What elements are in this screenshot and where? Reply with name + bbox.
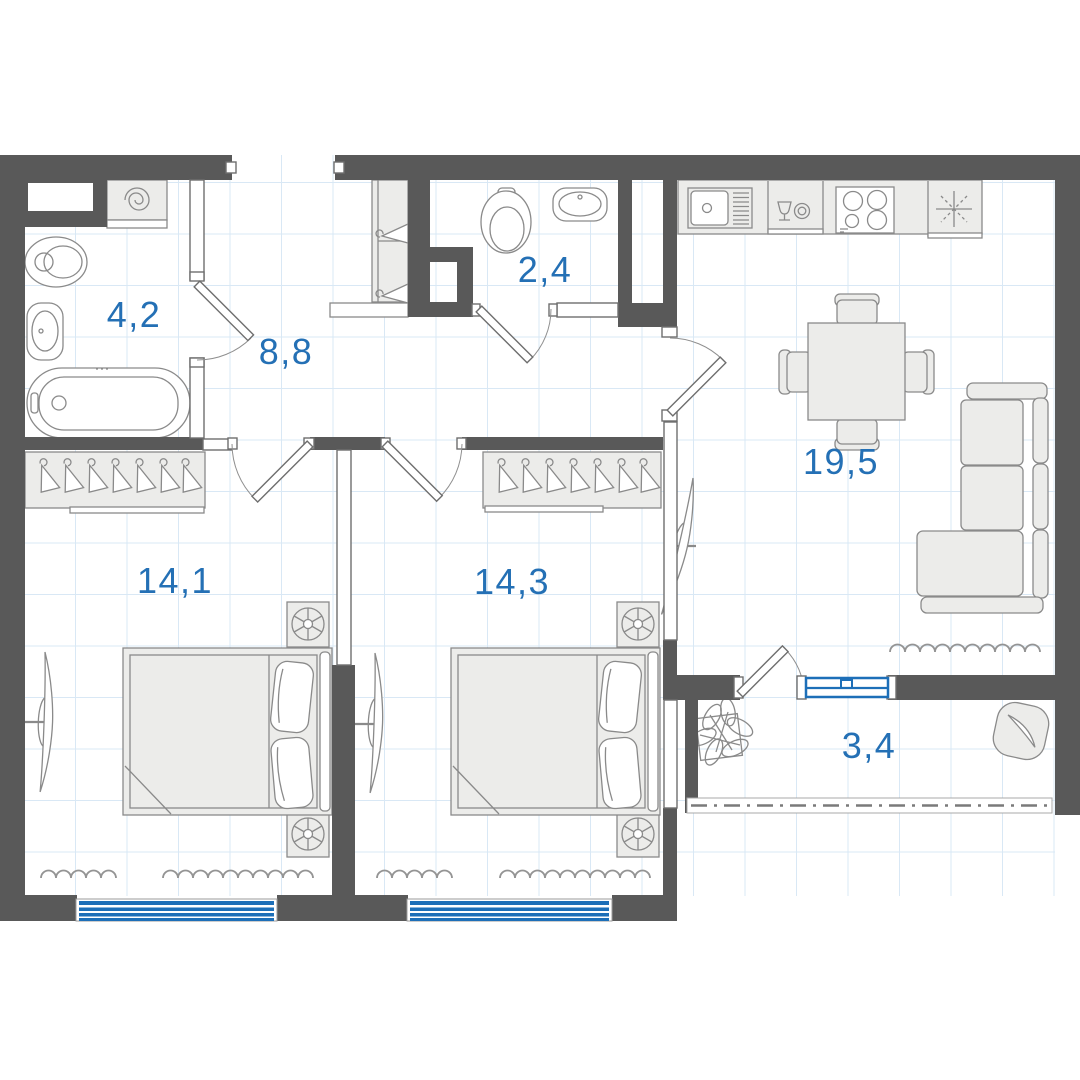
double-bed-icon: [123, 648, 332, 815]
wall-top-left: [0, 155, 232, 180]
hall-wardrobe: [372, 180, 408, 303]
toilet-icon: [25, 237, 87, 287]
floor-plan-page: 4,2 8,8 2,4 19,5 14,1 14,3 3,4: [0, 0, 1080, 1080]
wall-living-bottom: [663, 675, 740, 700]
wall-bedroom2-living: [663, 640, 677, 675]
washing-machine-icon: [107, 180, 167, 228]
wall-shaft: [618, 303, 677, 327]
wall-living-bottom: [888, 675, 1055, 700]
wall-hall-bedrooms: [310, 437, 385, 450]
partition-wc-sill: [557, 303, 618, 317]
wall-pier: [408, 177, 430, 317]
wall-pier: [430, 247, 473, 262]
partition-bedroom2-living: [664, 422, 677, 640]
wall-right: [1055, 155, 1080, 815]
washbasin-icon: [553, 188, 607, 221]
nightstand-lamp-icon: [617, 812, 659, 857]
vent-niche: [28, 183, 93, 211]
refrigerator-asterisk-icon: [936, 191, 972, 227]
door-jamb: [190, 358, 204, 367]
fridge-sill: [928, 233, 982, 238]
chair-icon: [903, 352, 927, 392]
partition-bathroom: [190, 358, 204, 438]
room-label-hallway: 8,8: [259, 331, 314, 372]
room-label-bedroom-1: 14,1: [137, 560, 213, 601]
wall-bedroom2-balcony: [663, 808, 677, 895]
nightstand-lamp-icon: [287, 812, 329, 857]
wall-bottom: [277, 895, 408, 921]
window-icon: [76, 899, 277, 921]
partition-bedroom2-balcony: [664, 700, 677, 808]
bathtub-icon: [27, 368, 190, 438]
wall-bathroom-bedroom1: [25, 437, 203, 450]
entrance-jamb: [334, 162, 344, 173]
wall-bottom: [612, 895, 677, 921]
partition-bathroom: [190, 180, 204, 280]
balcony-glazing-icon: [687, 798, 1052, 813]
room-label-wc: 2,4: [518, 249, 573, 290]
double-bed-icon: [451, 648, 660, 815]
cooktop-icon: [836, 187, 894, 233]
kitchen-counter: [678, 180, 982, 238]
dishwasher-sill: [768, 229, 823, 234]
door-jamb: [190, 272, 204, 281]
dining-table-icon: [808, 323, 905, 420]
washbasin-icon: [27, 303, 63, 360]
room-label-kitchen-living: 19,5: [803, 441, 879, 482]
entrance-jamb: [226, 162, 236, 173]
wall-between-bedrooms: [332, 665, 355, 895]
nightstand-lamp-icon: [287, 602, 329, 647]
floor-plan: 4,2 8,8 2,4 19,5 14,1 14,3 3,4: [0, 0, 1080, 1080]
window-icon: [407, 899, 612, 921]
door-jamb: [549, 304, 557, 316]
partition-bedrooms: [337, 450, 351, 665]
wall-balcony-left: [685, 698, 698, 813]
room-label-bedroom-2: 14,3: [474, 561, 550, 602]
door-jamb: [662, 327, 677, 337]
wall-left: [0, 155, 25, 921]
room-label-balcony: 3,4: [842, 725, 897, 766]
wall-hall-bedroom2: [462, 437, 663, 450]
wardrobe: [25, 452, 205, 513]
wall-top-right: [335, 155, 1080, 180]
room-label-bathroom: 4,2: [107, 294, 162, 335]
wardrobe: [483, 452, 661, 512]
shoe-bench: [330, 303, 408, 317]
chair-icon: [837, 300, 877, 325]
balcony-window-icon: [797, 676, 896, 699]
nightstand-lamp-icon: [617, 602, 659, 647]
wall-bottom: [0, 895, 77, 921]
